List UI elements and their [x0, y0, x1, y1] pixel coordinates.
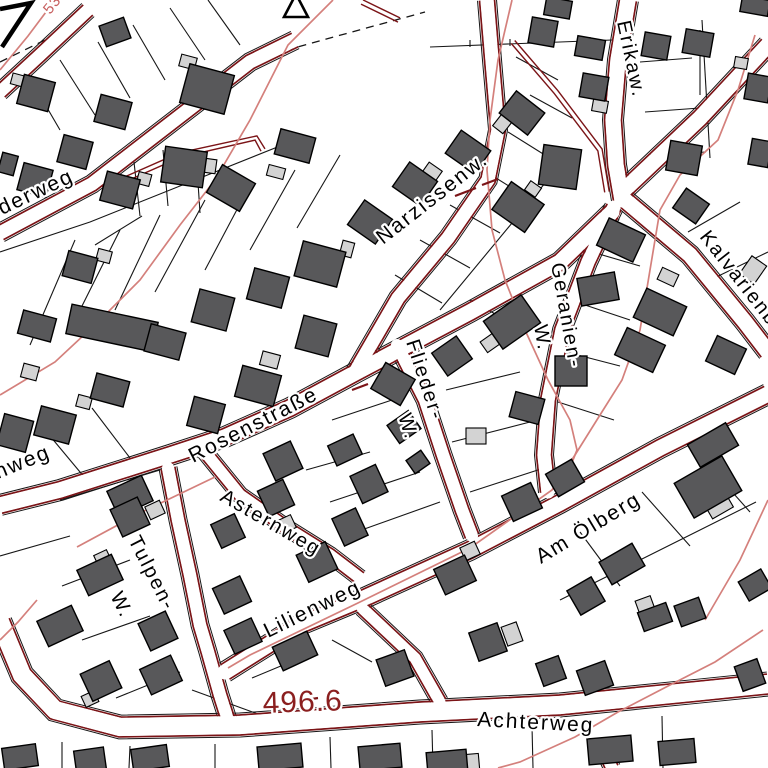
annex-building: [734, 56, 749, 69]
building-footprint: [577, 272, 619, 306]
building-footprint: [358, 743, 402, 768]
building-footprint: [161, 146, 208, 187]
building-footprint: [579, 73, 609, 101]
street-label-w: W.: [529, 323, 555, 352]
building-footprint: [658, 738, 696, 765]
elevation-label: 496.6: [262, 684, 343, 720]
annex-building: [466, 428, 486, 444]
building-footprint: [528, 17, 558, 47]
map-viewport[interactable]: derwegnwegRosenstraßeNarzissenw.Lilienwe…: [0, 0, 768, 768]
building-footprint: [666, 140, 703, 175]
cadastral-map-canvas[interactable]: derwegnwegRosenstraßeNarzissenw.Lilienwe…: [0, 0, 768, 768]
building-footprint: [744, 73, 768, 103]
building-footprint: [74, 747, 107, 768]
building-footprint: [426, 749, 468, 768]
building-footprint: [131, 745, 170, 768]
building-footprint: [2, 744, 39, 768]
building-footprint: [257, 743, 303, 768]
building-footprint: [641, 32, 671, 60]
building-footprint: [538, 145, 581, 190]
building-footprint: [587, 735, 633, 765]
building-footprint: [682, 29, 714, 57]
building-footprint: [574, 36, 605, 61]
